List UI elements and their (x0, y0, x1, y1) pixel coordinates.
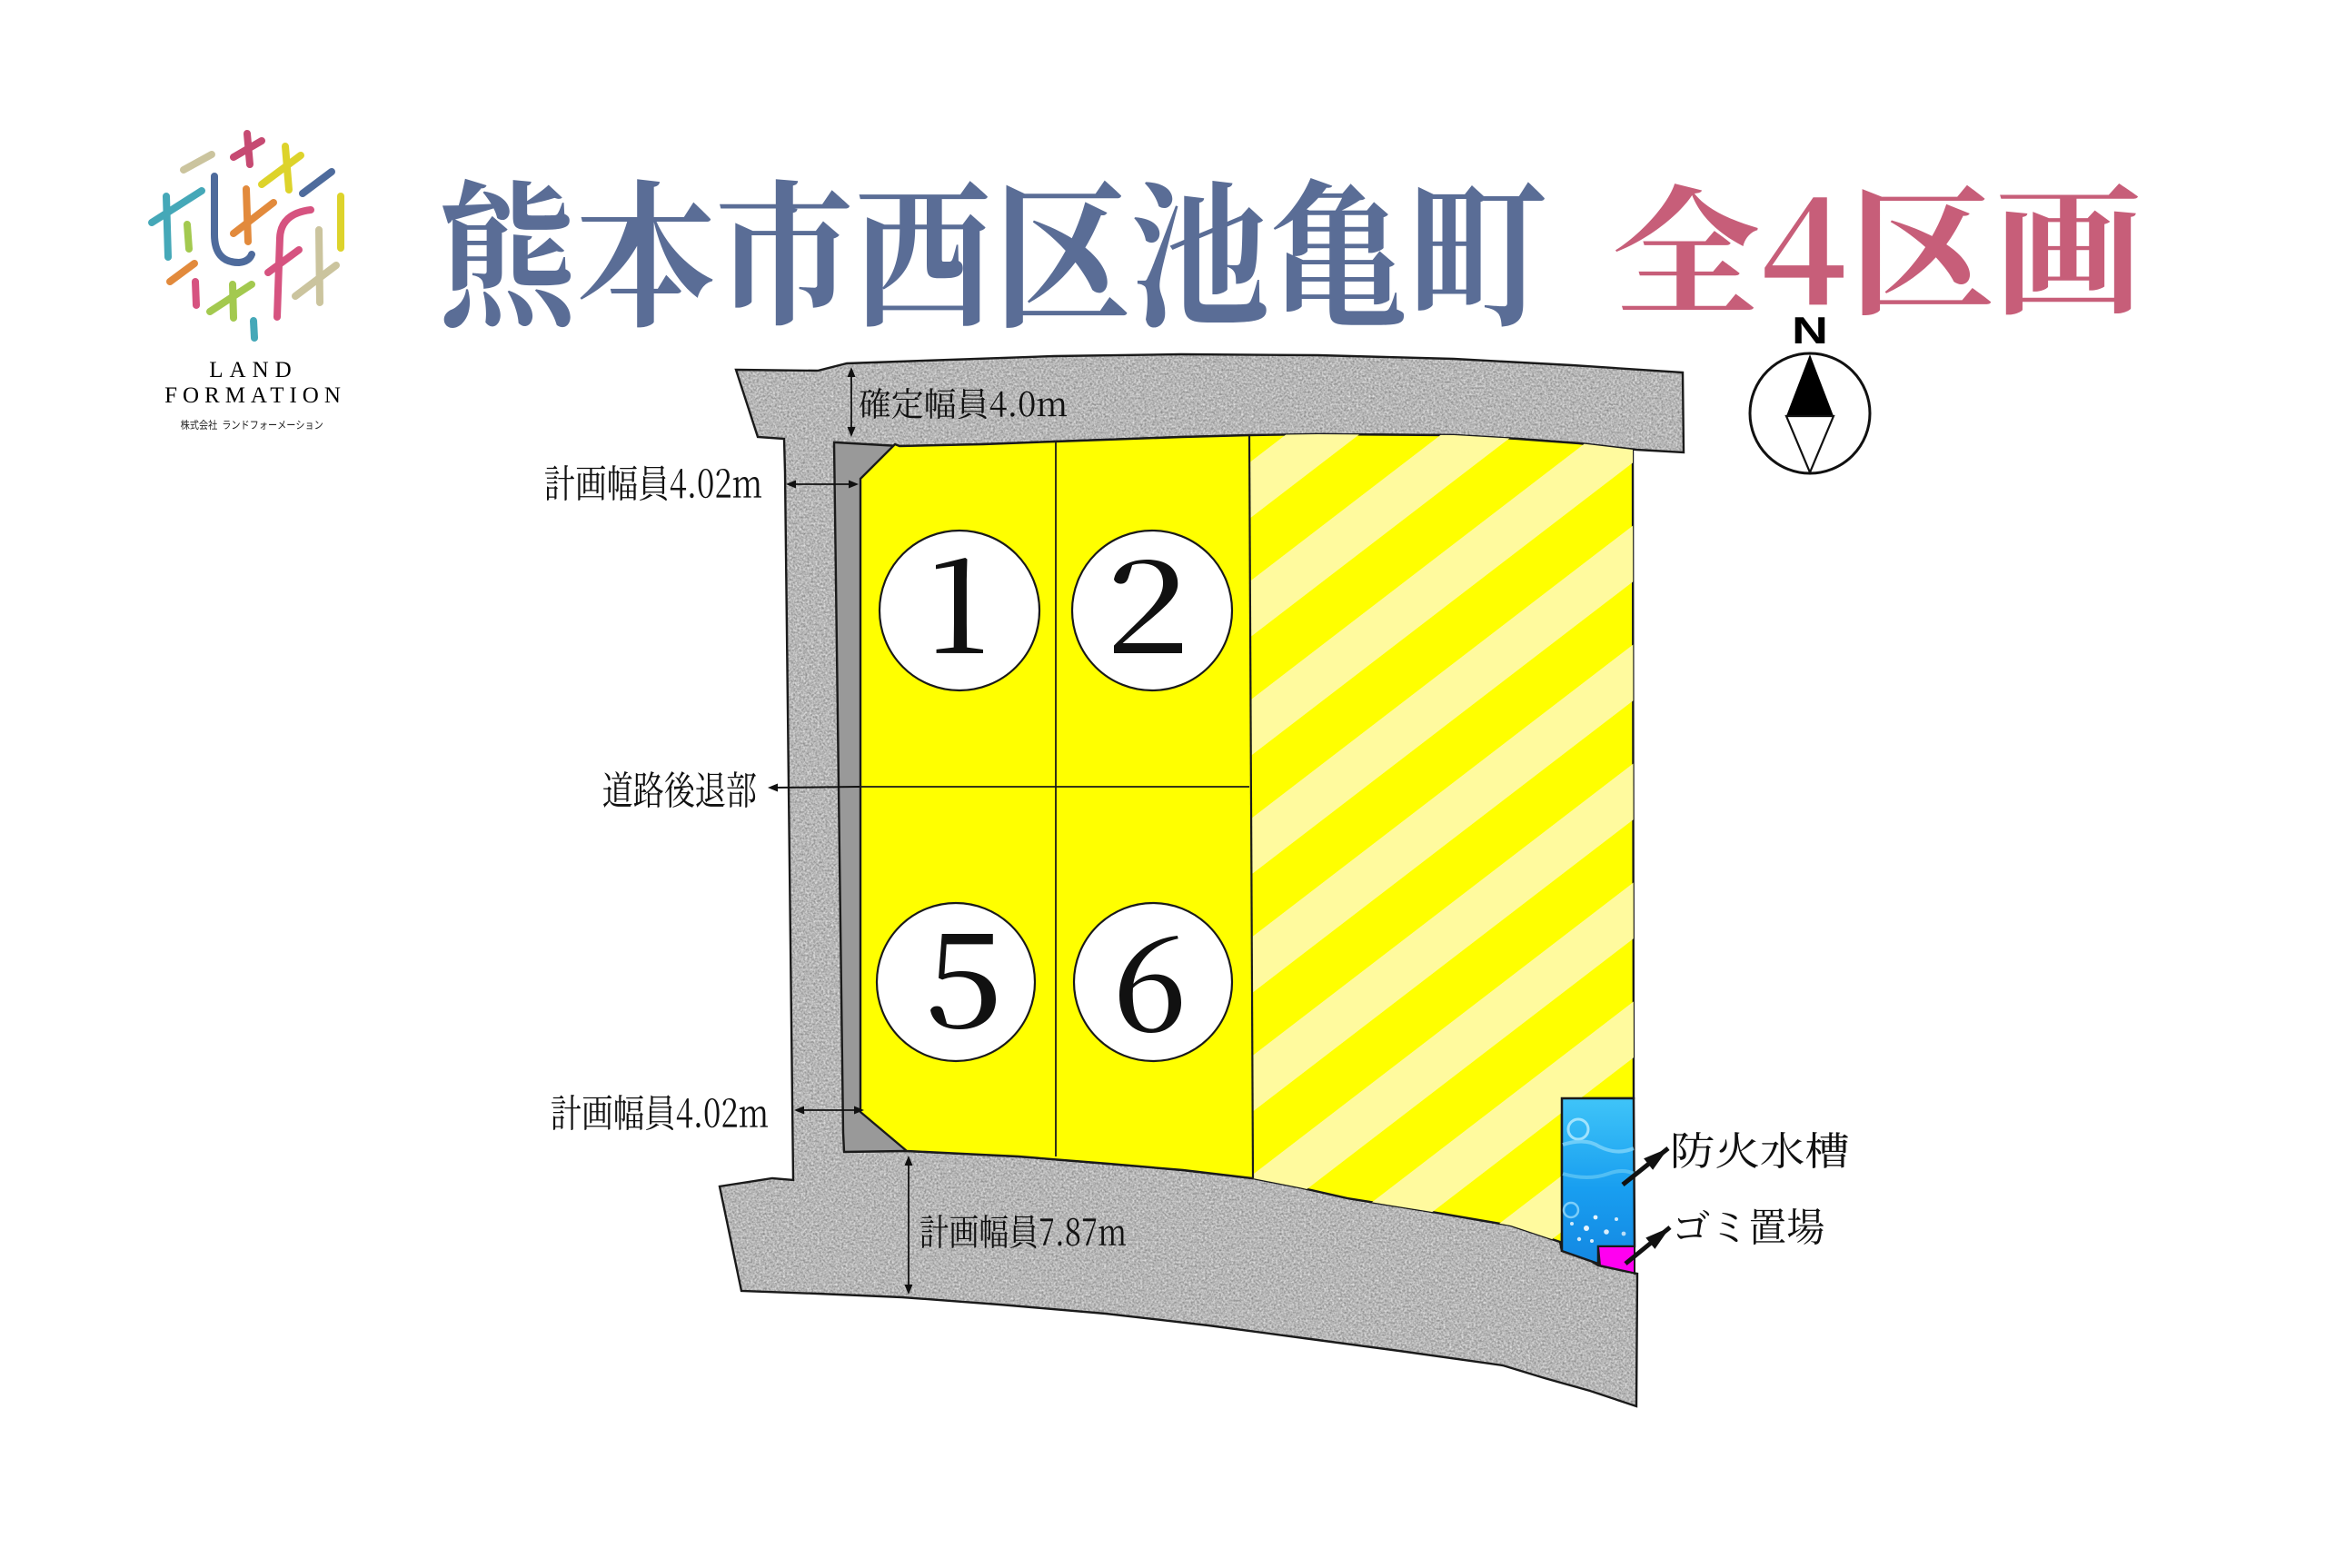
svg-text:LAND: LAND (209, 358, 297, 382)
svg-text:N: N (1792, 309, 1828, 352)
svg-text:FORMATION: FORMATION (164, 383, 346, 408)
